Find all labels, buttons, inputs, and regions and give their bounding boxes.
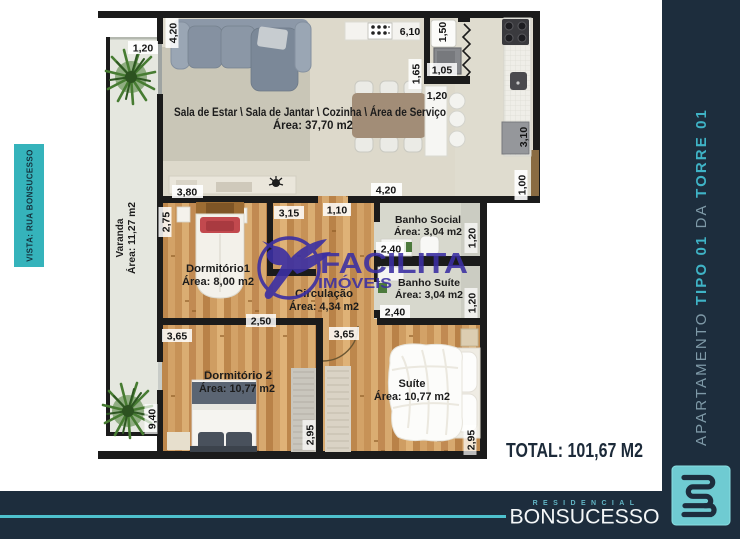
svg-text:APARTAMENTO TIPO 01 DA TORRE 0: APARTAMENTO TIPO 01 DA TORRE 01 bbox=[693, 108, 710, 446]
svg-text:Dormitório 2: Dormitório 2 bbox=[204, 370, 272, 382]
svg-text:3,65: 3,65 bbox=[167, 331, 188, 343]
svg-text:Área: 8,00 m2: Área: 8,00 m2 bbox=[182, 275, 254, 288]
svg-text:4,20: 4,20 bbox=[168, 23, 180, 44]
svg-text:1,20: 1,20 bbox=[427, 90, 448, 102]
svg-text:2,75: 2,75 bbox=[161, 212, 173, 233]
svg-text:1,65: 1,65 bbox=[411, 64, 423, 85]
svg-text:6,10: 6,10 bbox=[400, 26, 421, 38]
svg-text:1,10: 1,10 bbox=[327, 205, 348, 217]
svg-text:2,40: 2,40 bbox=[385, 307, 406, 319]
svg-text:Varanda: Varanda bbox=[115, 218, 126, 257]
svg-text:4,20: 4,20 bbox=[376, 185, 397, 197]
svg-text:2,95: 2,95 bbox=[466, 430, 478, 451]
svg-text:VISTA: RUA BONSUCESSO: VISTA: RUA BONSUCESSO bbox=[26, 149, 35, 261]
svg-text:3,15: 3,15 bbox=[279, 208, 300, 220]
svg-text:BONSUCESSO: BONSUCESSO bbox=[510, 506, 660, 529]
svg-text:Dormitório1: Dormitório1 bbox=[186, 263, 250, 275]
svg-text:3,80: 3,80 bbox=[177, 187, 198, 199]
svg-text:Área: 11,27 m2: Área: 11,27 m2 bbox=[125, 202, 138, 274]
svg-text:1,50: 1,50 bbox=[437, 22, 449, 43]
svg-text:1,20: 1,20 bbox=[467, 228, 479, 249]
svg-text:Banho Social: Banho Social bbox=[395, 214, 461, 226]
svg-text:1,00: 1,00 bbox=[517, 175, 529, 196]
svg-text:2,50: 2,50 bbox=[251, 316, 272, 328]
svg-text:IMÓVEIS: IMÓVEIS bbox=[318, 274, 392, 292]
svg-text:Área: 10,77 m2: Área: 10,77 m2 bbox=[374, 390, 450, 403]
svg-text:Suíte: Suíte bbox=[399, 378, 426, 390]
svg-text:1,20: 1,20 bbox=[467, 293, 479, 314]
svg-text:TOTAL: 101,67 M2: TOTAL: 101,67 M2 bbox=[506, 440, 643, 462]
svg-text:3,65: 3,65 bbox=[334, 329, 355, 341]
svg-text:9,40: 9,40 bbox=[147, 409, 159, 430]
svg-text:Sala de Estar \ Sala de Jantar: Sala de Estar \ Sala de Jantar \ Cozinha… bbox=[174, 106, 446, 119]
svg-text:Área: 3,04 m2: Área: 3,04 m2 bbox=[394, 225, 462, 238]
svg-text:3,10: 3,10 bbox=[518, 127, 530, 148]
svg-text:Área: 3,04 m2: Área: 3,04 m2 bbox=[395, 288, 463, 301]
svg-text:Área: 4,34 m2: Área: 4,34 m2 bbox=[289, 300, 359, 313]
svg-text:Área: 37,70 m2: Área: 37,70 m2 bbox=[273, 119, 353, 132]
svg-text:1,20: 1,20 bbox=[133, 43, 154, 55]
svg-text:2,95: 2,95 bbox=[305, 425, 317, 446]
svg-text:Área: 10,77 m2: Área: 10,77 m2 bbox=[199, 382, 275, 395]
svg-text:1,05: 1,05 bbox=[432, 65, 453, 77]
